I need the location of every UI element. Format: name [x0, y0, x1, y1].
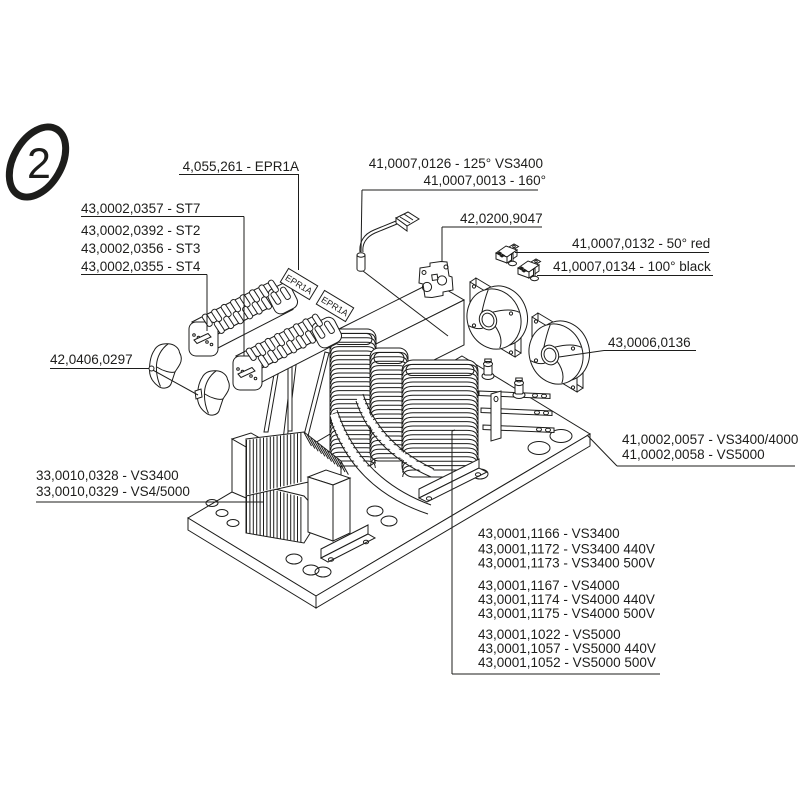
svg-text:43,0001,1172 - VS3400 440V: 43,0001,1172 - VS3400 440V — [478, 542, 655, 557]
svg-text:41,0007,0134 - 100° black: 41,0007,0134 - 100° black — [553, 259, 711, 274]
svg-text:43,0002,0356 - ST3: 43,0002,0356 - ST3 — [81, 241, 200, 256]
svg-text:43,0002,0357 - ST7: 43,0002,0357 - ST7 — [81, 201, 200, 216]
svg-text:43,0002,0355 - ST4: 43,0002,0355 - ST4 — [81, 259, 201, 274]
svg-text:41,0002,0057 - VS3400/4000: 41,0002,0057 - VS3400/4000 — [622, 432, 798, 447]
svg-text:43,0002,0392 - ST2: 43,0002,0392 - ST2 — [81, 223, 200, 238]
svg-text:42,0406,0297: 42,0406,0297 — [50, 352, 133, 367]
svg-text:43,0001,1174 - VS4000 440V: 43,0001,1174 - VS4000 440V — [478, 592, 655, 607]
svg-text:43,0001,1052 - VS5000 500V: 43,0001,1052 - VS5000 500V — [478, 655, 656, 670]
svg-text:43,0001,1166 - VS3400: 43,0001,1166 - VS3400 — [478, 526, 620, 541]
svg-text:43,0006,0136: 43,0006,0136 — [608, 335, 691, 350]
svg-text:43,0001,1175 - VS4000 500V: 43,0001,1175 - VS4000 500V — [478, 606, 655, 621]
svg-text:41,0007,0013 - 160°: 41,0007,0013 - 160° — [423, 173, 546, 188]
svg-text:42,0200,9047: 42,0200,9047 — [460, 211, 543, 226]
svg-text:2: 2 — [27, 140, 51, 188]
svg-text:41,0002,0058 - VS5000: 41,0002,0058 - VS5000 — [622, 447, 765, 462]
svg-text:33,0010,0328 - VS3400: 33,0010,0328 - VS3400 — [36, 468, 179, 483]
svg-text:43,0001,1022 - VS5000: 43,0001,1022 - VS5000 — [478, 627, 621, 642]
svg-text:43,0001,1173 - VS3400 500V: 43,0001,1173 - VS3400 500V — [478, 556, 655, 571]
svg-text:41,0007,0132 - 50° red: 41,0007,0132 - 50° red — [572, 236, 710, 251]
svg-text:41,0007,0126 - 125° VS3400: 41,0007,0126 - 125° VS3400 — [369, 156, 543, 171]
svg-text:43,0001,1167 - VS4000: 43,0001,1167 - VS4000 — [478, 578, 620, 593]
svg-text:4,055,261 - EPR1A: 4,055,261 - EPR1A — [183, 159, 299, 174]
svg-text:33,0010,0329 - VS4/5000: 33,0010,0329 - VS4/5000 — [36, 484, 190, 499]
svg-text:43,0001,1057 - VS5000 440V: 43,0001,1057 - VS5000 440V — [478, 641, 656, 656]
